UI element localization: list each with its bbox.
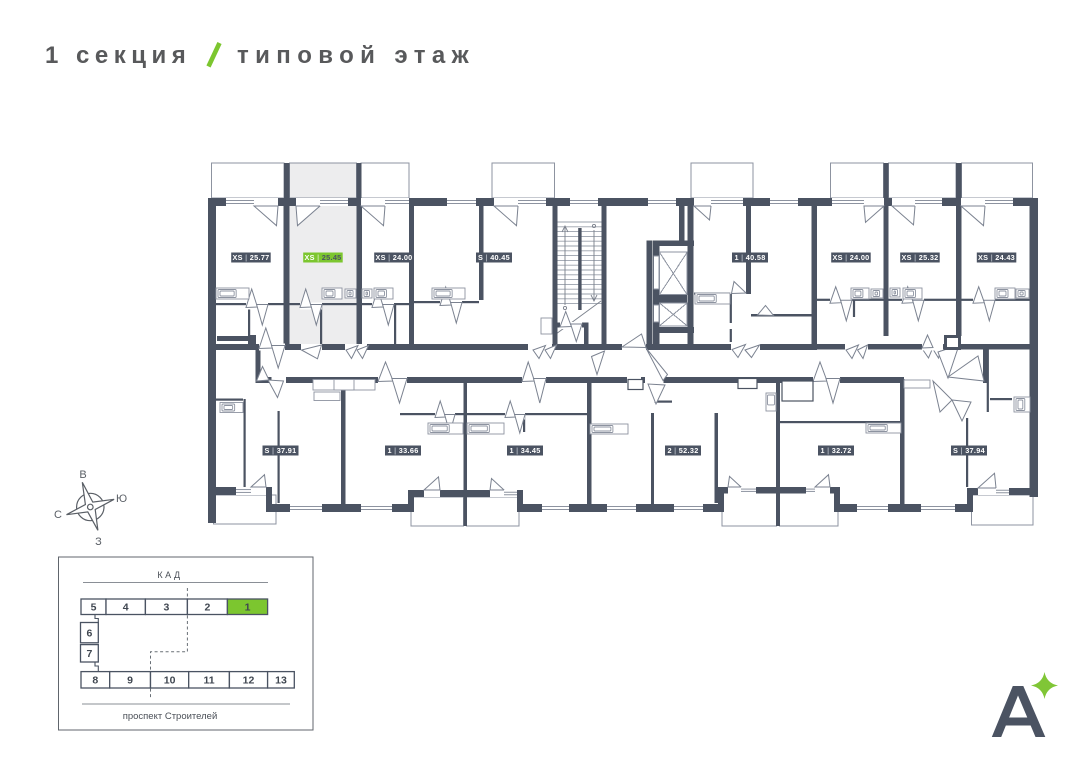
svg-text:3: 3 xyxy=(163,602,169,614)
svg-text:XS | 25.45: XS | 25.45 xyxy=(304,253,341,262)
svg-text:1 | 34.45: 1 | 34.45 xyxy=(509,446,540,455)
svg-text:1 | 32.72: 1 | 32.72 xyxy=(820,446,851,455)
svg-text:типовой этаж: типовой этаж xyxy=(237,42,475,69)
svg-text:XS | 24.43: XS | 24.43 xyxy=(978,253,1015,262)
svg-text:проспект Строителей: проспект Строителей xyxy=(123,711,218,722)
svg-text:5: 5 xyxy=(91,602,97,614)
svg-text:2: 2 xyxy=(204,602,210,614)
svg-text:6: 6 xyxy=(86,627,92,639)
svg-text:9: 9 xyxy=(127,675,133,687)
svg-text:11: 11 xyxy=(203,675,214,687)
svg-text:1 | 33.66: 1 | 33.66 xyxy=(387,446,418,455)
svg-text:10: 10 xyxy=(164,675,176,687)
svg-text:S | 37.91: S | 37.91 xyxy=(265,446,297,455)
svg-text:С: С xyxy=(54,509,62,521)
svg-text:4: 4 xyxy=(123,602,129,614)
svg-text:13: 13 xyxy=(275,675,287,687)
svg-text:S | 37.94: S | 37.94 xyxy=(953,446,986,455)
svg-text:З: З xyxy=(95,536,102,548)
svg-text:S | 40.45: S | 40.45 xyxy=(478,253,510,262)
svg-text:XS | 24.00: XS | 24.00 xyxy=(832,253,869,262)
svg-text:1: 1 xyxy=(245,601,251,613)
svg-text:2 | 52.32: 2 | 52.32 xyxy=(667,446,698,455)
svg-text:12: 12 xyxy=(243,675,255,687)
svg-text:XS | 25.77: XS | 25.77 xyxy=(232,253,269,262)
svg-text:8: 8 xyxy=(92,675,98,687)
svg-text:В: В xyxy=(79,469,86,481)
svg-text:XS | 25.32: XS | 25.32 xyxy=(901,253,938,262)
svg-text:1 | 40.58: 1 | 40.58 xyxy=(734,253,765,262)
svg-text:7: 7 xyxy=(86,648,92,660)
svg-text:Ю: Ю xyxy=(116,493,127,505)
svg-text:1 секция: 1 секция xyxy=(45,42,191,69)
svg-text:КАД: КАД xyxy=(157,570,182,580)
svg-text:XS | 24.00: XS | 24.00 xyxy=(375,253,412,262)
